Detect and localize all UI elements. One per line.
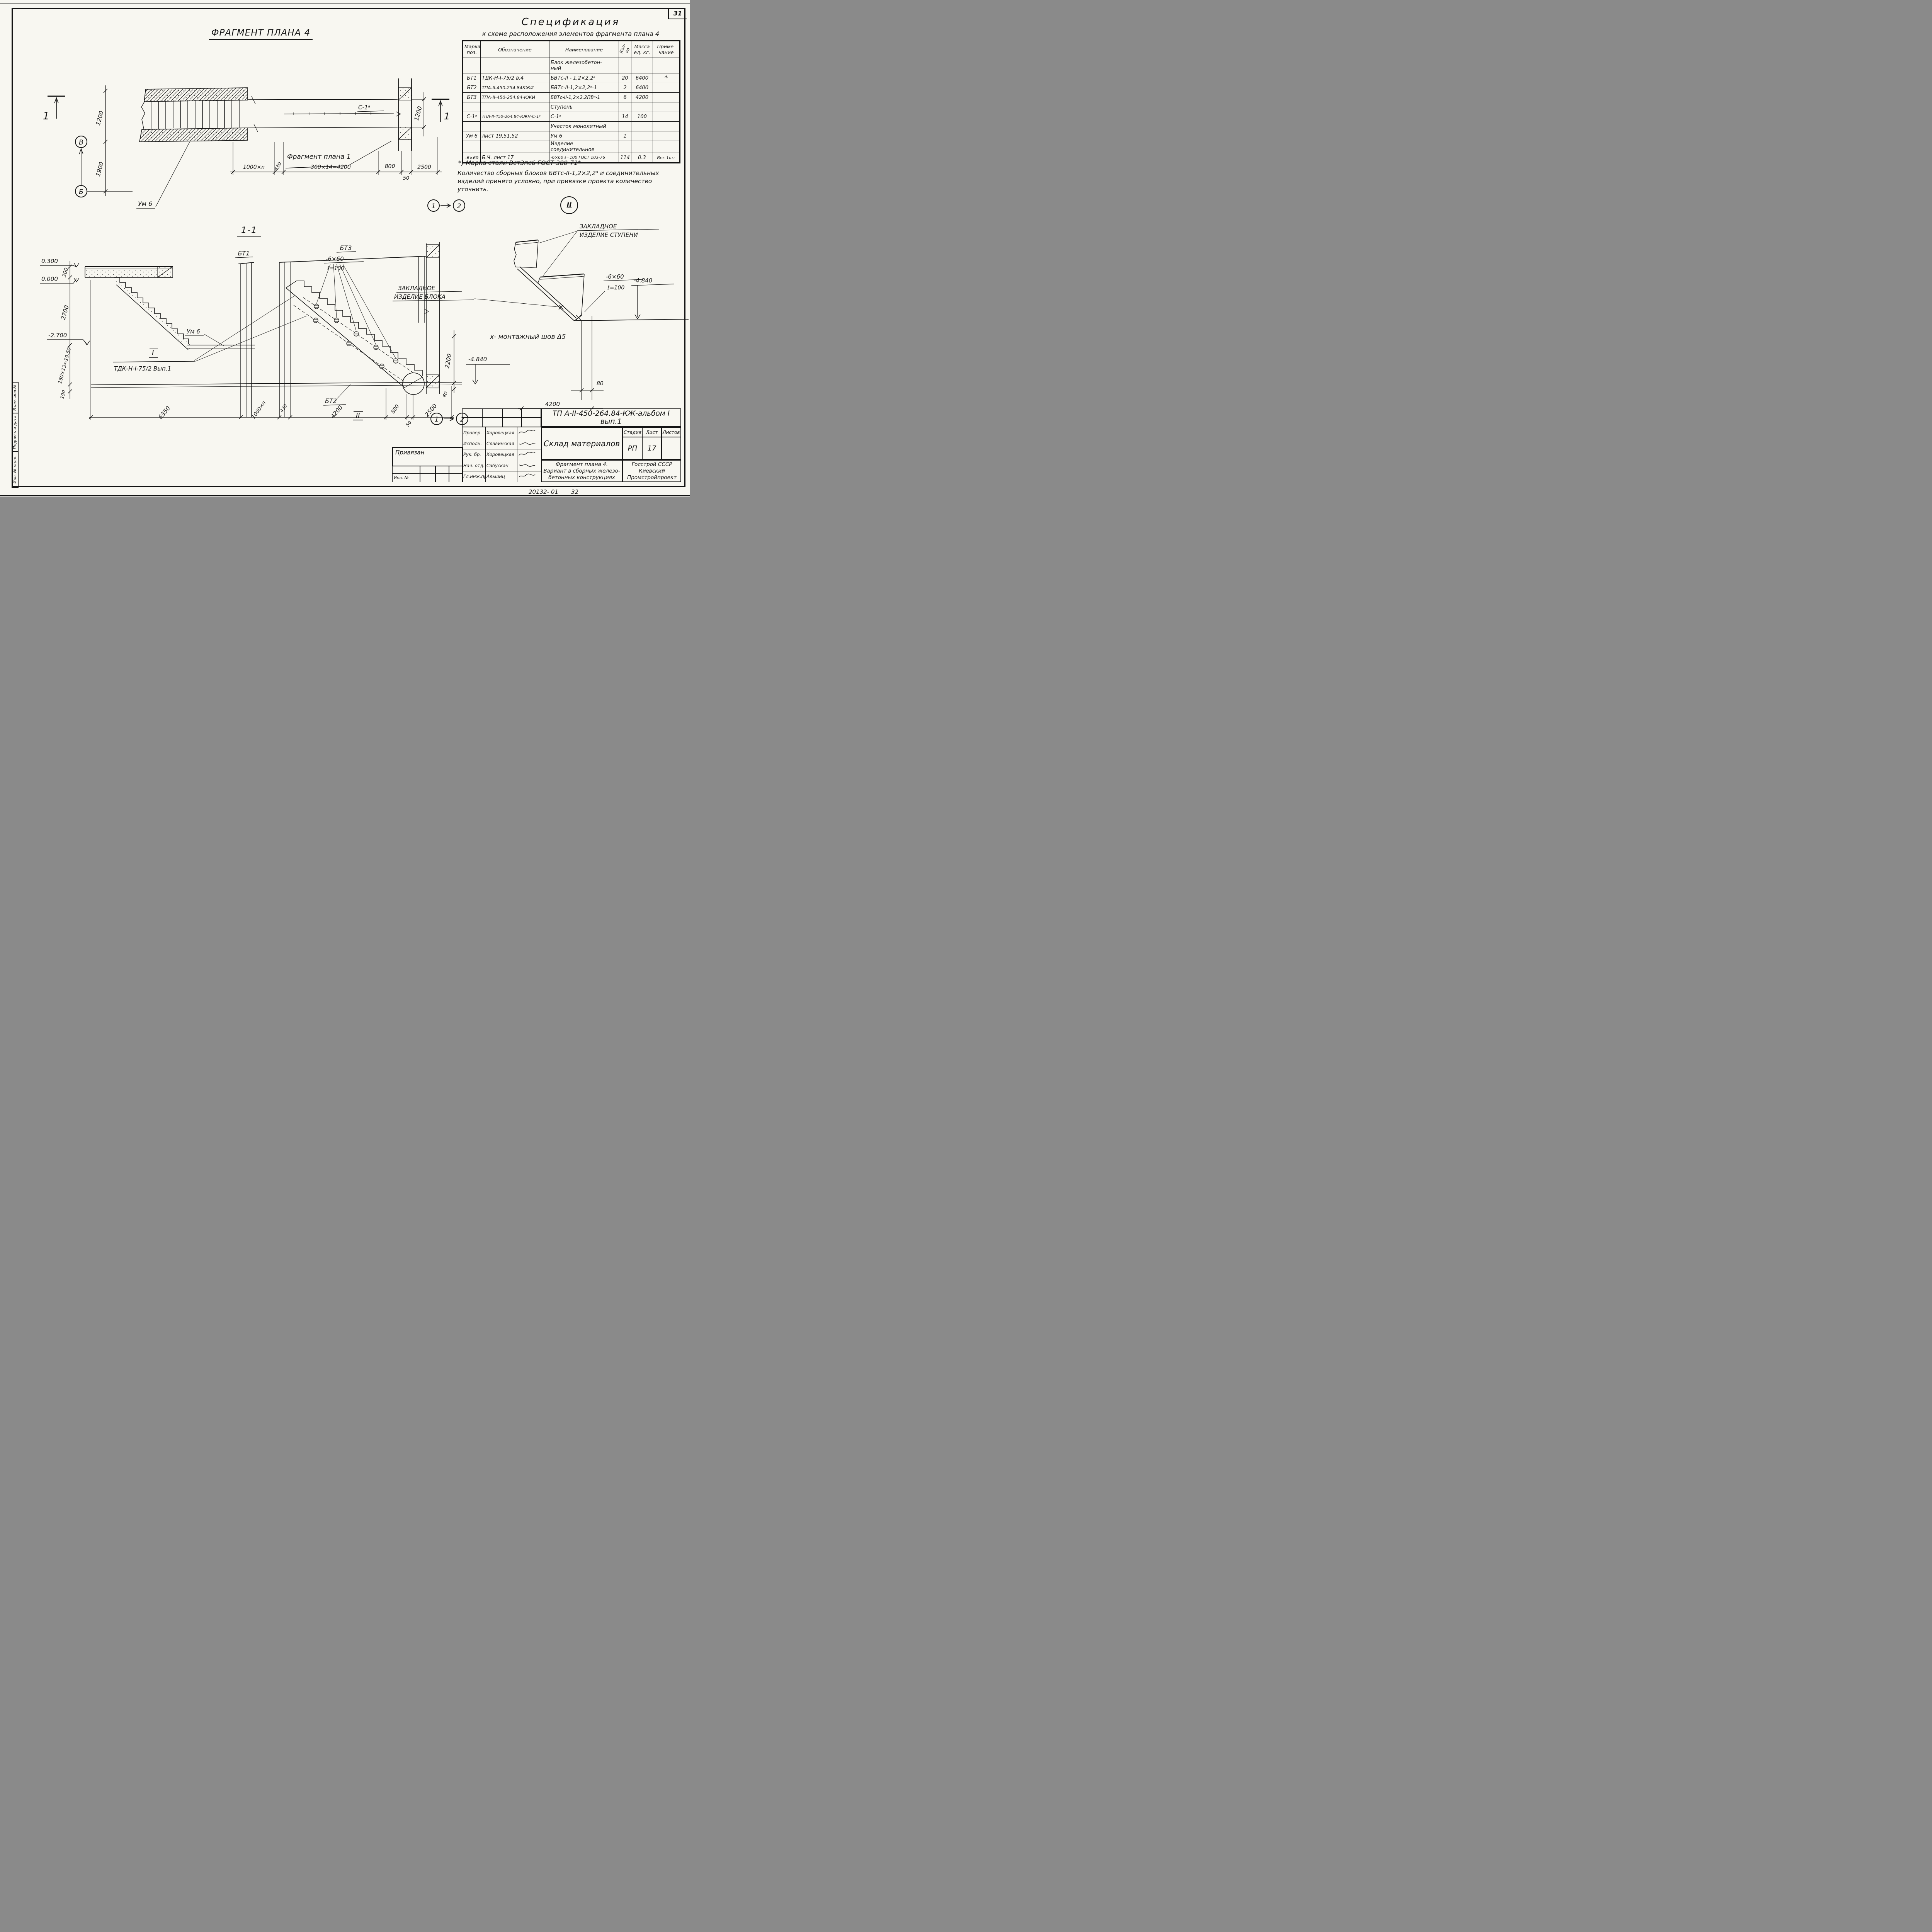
- spec-subtitle: к схеме расположения элементов фрагмента…: [456, 30, 685, 37]
- role-label: Рук. бр.: [463, 449, 486, 460]
- plan-dim-1900: 1900: [95, 161, 105, 177]
- side-stamp-vzam: Взам. инв.№: [12, 382, 19, 413]
- detail1-ref-label: ТДК-Н-I-75/2 Вып.1: [114, 365, 171, 372]
- role-name: Сабускан: [486, 460, 517, 471]
- section-elevation-m4840: -4.840: [466, 356, 510, 384]
- role-name: Хоровецкая: [486, 449, 517, 460]
- titleblock-inv-label: Инв. №: [394, 476, 409, 480]
- role-name: Хоровецкая: [486, 427, 517, 438]
- plan-um6-label: Ум 6: [138, 200, 152, 207]
- section-bt3-label: БТ3: [340, 244, 352, 252]
- axis-b-label: Б: [79, 188, 83, 196]
- plan-dim-800: 800: [385, 163, 395, 170]
- plan-dim-50: 50: [403, 175, 410, 181]
- detail-step-block-1: [514, 240, 538, 268]
- svg-text:ИЗДЕЛИЕ СТУПЕНИ: ИЗДЕЛИЕ СТУПЕНИ: [580, 231, 638, 238]
- section-elevation-m2700: -2.700: [47, 332, 90, 345]
- titleblock-sheet-name: Фрагмент плана 4. Вариант в сборных желе…: [541, 460, 622, 482]
- node-2-label: 2: [457, 202, 461, 210]
- titleblock-revision-grid: [462, 408, 541, 427]
- spec-table: Марка поз. Обозначение Наименование Кол-…: [462, 40, 680, 163]
- titleblock-organization: Госстрой СССР Киевский Промстройпроект: [622, 460, 681, 482]
- detail-dim-80: 80: [597, 381, 604, 387]
- section-dim-6350: 6350: [157, 405, 172, 420]
- svg-text:0.000: 0.000: [41, 276, 58, 282]
- plan-fragment1-label: Фрагмент плана 1: [287, 153, 351, 161]
- section-flight1: [114, 277, 255, 350]
- spec-row-bt1: БТ1ТДК-Н-I-75/2 в.4 БВТс-II - 1,2×2,2ᵃ20…: [463, 73, 680, 83]
- role-label: Гл.инж.пр.: [463, 471, 486, 482]
- weld-x-mark: [576, 315, 581, 320]
- role-label: Исполн.: [463, 438, 486, 449]
- section-left-dimension: 300 2700 150×13=19.50 190: [57, 261, 72, 400]
- detail-dimensions: 80 4200: [518, 316, 604, 410]
- plan-right-dimension: 1200: [413, 92, 426, 136]
- detail-ii-drawing: ЗАКЛАДНОЕ ИЗДЕЛИЕ СТУПЕНИ ЗАКЛАДНОЕ ИЗДЕ…: [386, 218, 690, 412]
- section-bt1-label: БТ1: [238, 250, 250, 257]
- spec-row-s1a: С-1ᵃТПА-II-450-264.84-КЖН-С-1ᵃ С-1ᵃ14 10…: [463, 112, 680, 122]
- signature-squiggle: [517, 460, 541, 471]
- svg-text:БТ2: БТ2: [325, 397, 337, 405]
- node-1-label: 1: [432, 202, 436, 210]
- footer-page-number: 32: [571, 488, 578, 495]
- svg-text:-4.840: -4.840: [468, 356, 487, 363]
- plan-um6: Ум 6: [136, 142, 190, 208]
- role-name: Славинская: [486, 438, 517, 449]
- section-dim-1000n: 1000×n: [251, 400, 267, 420]
- section-elevation-0300: 0.300: [40, 258, 79, 267]
- titleblock-stage-value: РП: [622, 437, 643, 460]
- titleblock-stage-label: Стадия: [622, 427, 643, 437]
- plan-stair-band: [139, 88, 398, 142]
- spec-row-bt2: БТ2ТПА-II-450-254.84КЖИ БВТс-II-1,2×2,2ᵃ…: [463, 83, 680, 93]
- section-um6: Ум 6: [185, 328, 224, 346]
- spec-col-marka: Марка поз.: [463, 41, 481, 58]
- plan-node-markers: 1 2: [427, 198, 470, 213]
- signature-squiggle: [517, 438, 541, 449]
- plan-dim-2500: 2500: [417, 164, 431, 170]
- svg-text:-6×60: -6×60: [606, 273, 624, 280]
- titleblock-sheets-value: [661, 437, 681, 460]
- svg-text:0.300: 0.300: [41, 258, 58, 265]
- section-6x60-callout: -6×60 ℓ=100: [316, 255, 396, 358]
- signature-squiggle: [517, 427, 541, 438]
- svg-text:ЗАКЛАДНОЕ: ЗАКЛАДНОЕ: [398, 285, 435, 292]
- detail-step-embed-label: ЗАКЛАДНОЕ ИЗДЕЛИЕ СТУПЕНИ: [539, 223, 659, 276]
- plan-section-mark-right: 1: [432, 99, 450, 122]
- titleblock-sheet-label: Лист: [642, 427, 662, 437]
- plan-left-dimension: 1200 1900: [95, 85, 107, 196]
- page-top-edge-line: [0, 3, 690, 3]
- spec-row-um6: Ум 6лист 19,51,52 Ум 61: [463, 131, 680, 141]
- detail-elevation-m4840: -4.840: [631, 277, 674, 319]
- spec-col-massa: Масса ед. кг.: [631, 41, 653, 58]
- plan-section-mark-left-label: 1: [43, 111, 49, 122]
- section-dim-50: 50: [405, 420, 413, 428]
- side-stamp-inv: Инв. № подл.: [12, 451, 19, 488]
- detail-floor-line: [574, 319, 689, 321]
- titleblock-attached-grid: Инв. №: [392, 466, 463, 482]
- titleblock-object: Склад материалов: [541, 427, 622, 460]
- plan-s1a-label: С-1ᵃ: [358, 104, 370, 111]
- titleblock-designation: ТП А-II-450-264.84-КЖ-альбом I вып.1: [541, 408, 681, 427]
- section-dim-430: 430: [279, 403, 288, 413]
- titleblock-sheet-value: 17: [642, 437, 662, 460]
- detail-note: х- монтажный шов Δ5: [490, 333, 566, 341]
- titleblock-sheets-label: Листов: [661, 427, 681, 437]
- drawing-sheet: 31 Взам. инв.№ Подпись и дата Инв. № под…: [0, 0, 690, 497]
- detail-dim-4200: 4200: [545, 401, 560, 408]
- spec-footnote: *) Марка стали Вст3пс6 ГОСТ 380-71*: [458, 159, 581, 167]
- plan-dim-1000n: 1000×n: [243, 164, 265, 170]
- spec-title: Спецификация: [462, 16, 679, 28]
- axis-v-label: В: [79, 139, 83, 146]
- spec-col-naimen: Наименование: [549, 41, 619, 58]
- spec-col-obozn: Обозначение: [481, 41, 549, 58]
- side-stamp-inv-label: Инв. № подл.: [13, 456, 17, 483]
- plan-section-mark-right-label: 1: [444, 111, 450, 122]
- plan-drawing: 1 В Б 1200 1900: [37, 75, 456, 216]
- detail-block-embed-label: ЗАКЛАДНОЕ ИЗДЕЛИЕ БЛОКА: [393, 285, 581, 320]
- role-label: Провер.: [463, 427, 486, 438]
- signature-squiggle: [517, 449, 541, 460]
- titleblock-attached: Привязан: [392, 447, 463, 466]
- plan-dim-right-1200: 1200: [413, 105, 423, 122]
- section-top-slab: [85, 267, 173, 277]
- svg-text:Ум 6: Ум 6: [187, 328, 200, 335]
- section-detail2-mark: II: [353, 412, 363, 420]
- spec-group-row: Ступень: [463, 102, 680, 112]
- svg-text:ℓ=100: ℓ=100: [607, 285, 624, 291]
- plan-section-mark-left: 1: [43, 96, 65, 122]
- footer-doc-number: 20132- 01: [529, 488, 558, 495]
- svg-text:-2.700: -2.700: [48, 332, 67, 339]
- side-stamp-podpis: Подпись и дата: [12, 413, 19, 452]
- plan-title: ФРАГМЕНТ ПЛАНА 4: [201, 28, 321, 38]
- section-dim-2700: 2700: [60, 304, 70, 321]
- section-dim-300: 300: [61, 267, 70, 278]
- side-stamp-vzam-label: Взам. инв.№: [13, 384, 17, 411]
- section-elevation-0000: 0.000: [40, 276, 79, 283]
- signature-squiggle: [517, 471, 541, 482]
- section-dim-190: 190: [59, 389, 67, 400]
- svg-text:II: II: [356, 412, 360, 420]
- sheet-number: 31: [673, 10, 682, 17]
- spec-group-row: Изделие соединительное: [463, 141, 680, 153]
- titleblock-signatures: Провер. Хоровецкая Исполн. Славинская Ру…: [462, 427, 541, 482]
- plan-title-text: ФРАГМЕНТ ПЛАНА 4: [209, 28, 313, 40]
- plan-dim-1200: 1200: [95, 110, 105, 126]
- spec-header-row: Марка поз. Обозначение Наименование Кол-…: [463, 41, 680, 58]
- spec-row-bt3: БТ3ТПА-II-450-254.84-КЖИ БВТс-II-1,2×2,2…: [463, 93, 680, 102]
- side-stamp-podpis-label: Подпись и дата: [13, 415, 17, 449]
- role-label: Нач. отд.: [463, 460, 486, 471]
- svg-text:ИЗДЕЛИЕ БЛОКА: ИЗДЕЛИЕ БЛОКА: [394, 293, 446, 300]
- plan-step-line: С-1ᵃ: [284, 104, 394, 115]
- svg-text:ЗАКЛАДНОЕ: ЗАКЛАДНОЕ: [580, 223, 617, 230]
- spec-note: Количество сборных блоков БВТс-II-1,2×2,…: [457, 169, 685, 194]
- spec-col-prim: Приме- чание: [653, 41, 680, 58]
- section-bt1-wall: БТ1: [235, 250, 254, 417]
- fastener-symbols: [313, 304, 398, 369]
- section-bt2: БТ2: [323, 384, 350, 405]
- detail-ii-circle-marker: II: [560, 196, 578, 214]
- spec-group-row: Блок железобетон- ный: [463, 58, 680, 73]
- role-name: Альшиц: [486, 471, 517, 482]
- spec-col-kol: Кол-во: [619, 41, 631, 58]
- svg-text:-6×60: -6×60: [326, 255, 344, 262]
- detail1-mark: I: [152, 349, 154, 357]
- page-bottom-edge-line: [0, 495, 690, 496]
- svg-text:-4.840: -4.840: [634, 277, 652, 284]
- spec-group-row: Участок монолитный: [463, 122, 680, 131]
- detail-step-block-2: [538, 274, 584, 321]
- plan-dim-4200: 300×14=4200: [311, 164, 351, 170]
